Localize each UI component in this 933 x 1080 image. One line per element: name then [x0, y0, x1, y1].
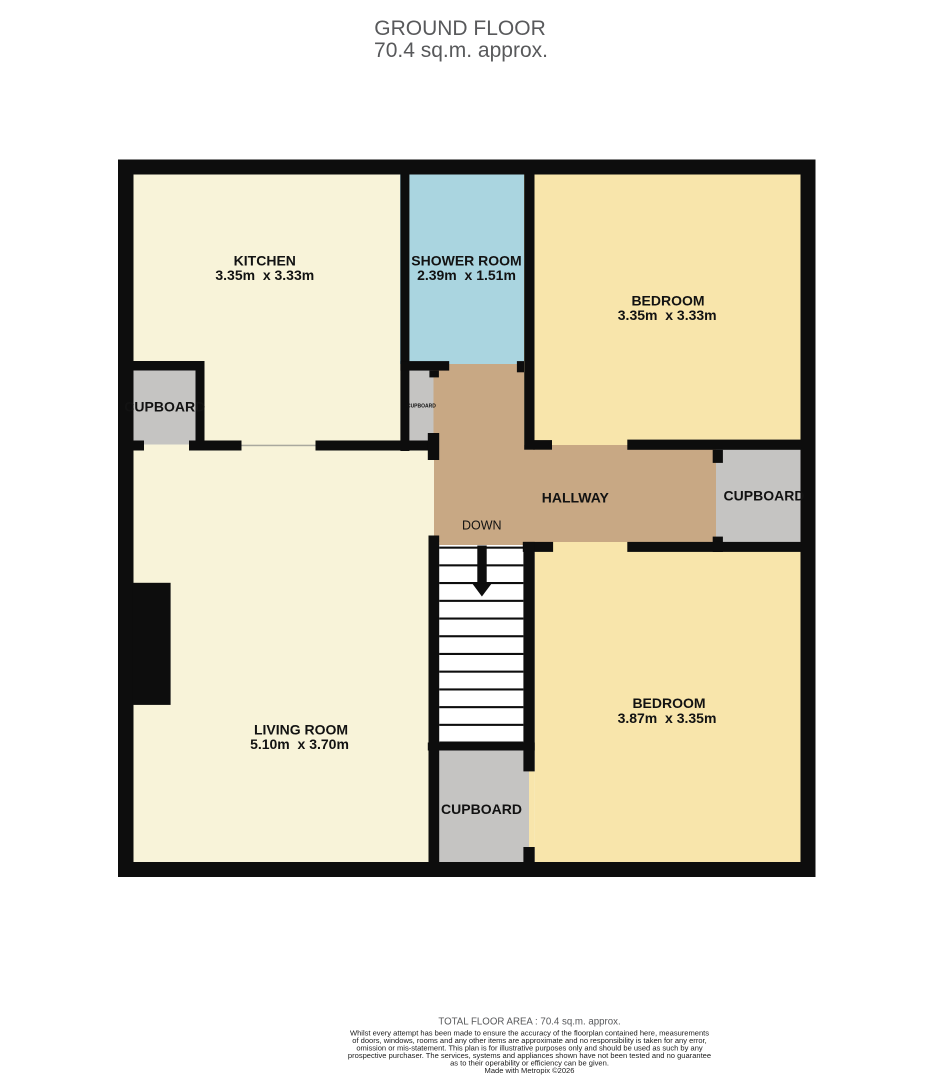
svg-text:GROUND FLOOR: GROUND FLOOR: [374, 17, 546, 40]
svg-text:CUPBOARD: CUPBOARD: [724, 488, 805, 504]
svg-text:70.4 sq.m. approx.: 70.4 sq.m. approx.: [374, 39, 548, 62]
svg-text:LIVING ROOM: LIVING ROOM: [254, 721, 348, 737]
svg-text:TOTAL FLOOR AREA : 70.4 sq.m.: TOTAL FLOOR AREA : 70.4 sq.m. approx.: [438, 1017, 620, 1028]
svg-text:CUPBOARD: CUPBOARD: [441, 801, 522, 817]
svg-text:2.39m x 1.51m: 2.39m x 1.51m: [417, 267, 516, 283]
svg-text:3.87m x 3.35m: 3.87m x 3.35m: [618, 710, 717, 726]
svg-text:SHOWER ROOM: SHOWER ROOM: [411, 252, 521, 268]
svg-text:BEDROOM: BEDROOM: [631, 292, 704, 308]
svg-text:CUPBOARD: CUPBOARD: [124, 399, 205, 415]
svg-text:5.10m x 3.70m: 5.10m x 3.70m: [250, 736, 349, 752]
svg-text:KITCHEN: KITCHEN: [234, 252, 296, 268]
svg-text:CUPBOARD: CUPBOARD: [407, 404, 436, 410]
svg-text:3.35m x 3.33m: 3.35m x 3.33m: [618, 307, 717, 323]
svg-text:DOWN: DOWN: [462, 518, 502, 532]
svg-text:3.35m x 3.33m: 3.35m x 3.33m: [215, 267, 314, 283]
svg-text:BEDROOM: BEDROOM: [632, 695, 705, 711]
svg-text:Made with Metropix ©2026: Made with Metropix ©2026: [485, 1066, 575, 1075]
svg-text:HALLWAY: HALLWAY: [542, 489, 610, 505]
